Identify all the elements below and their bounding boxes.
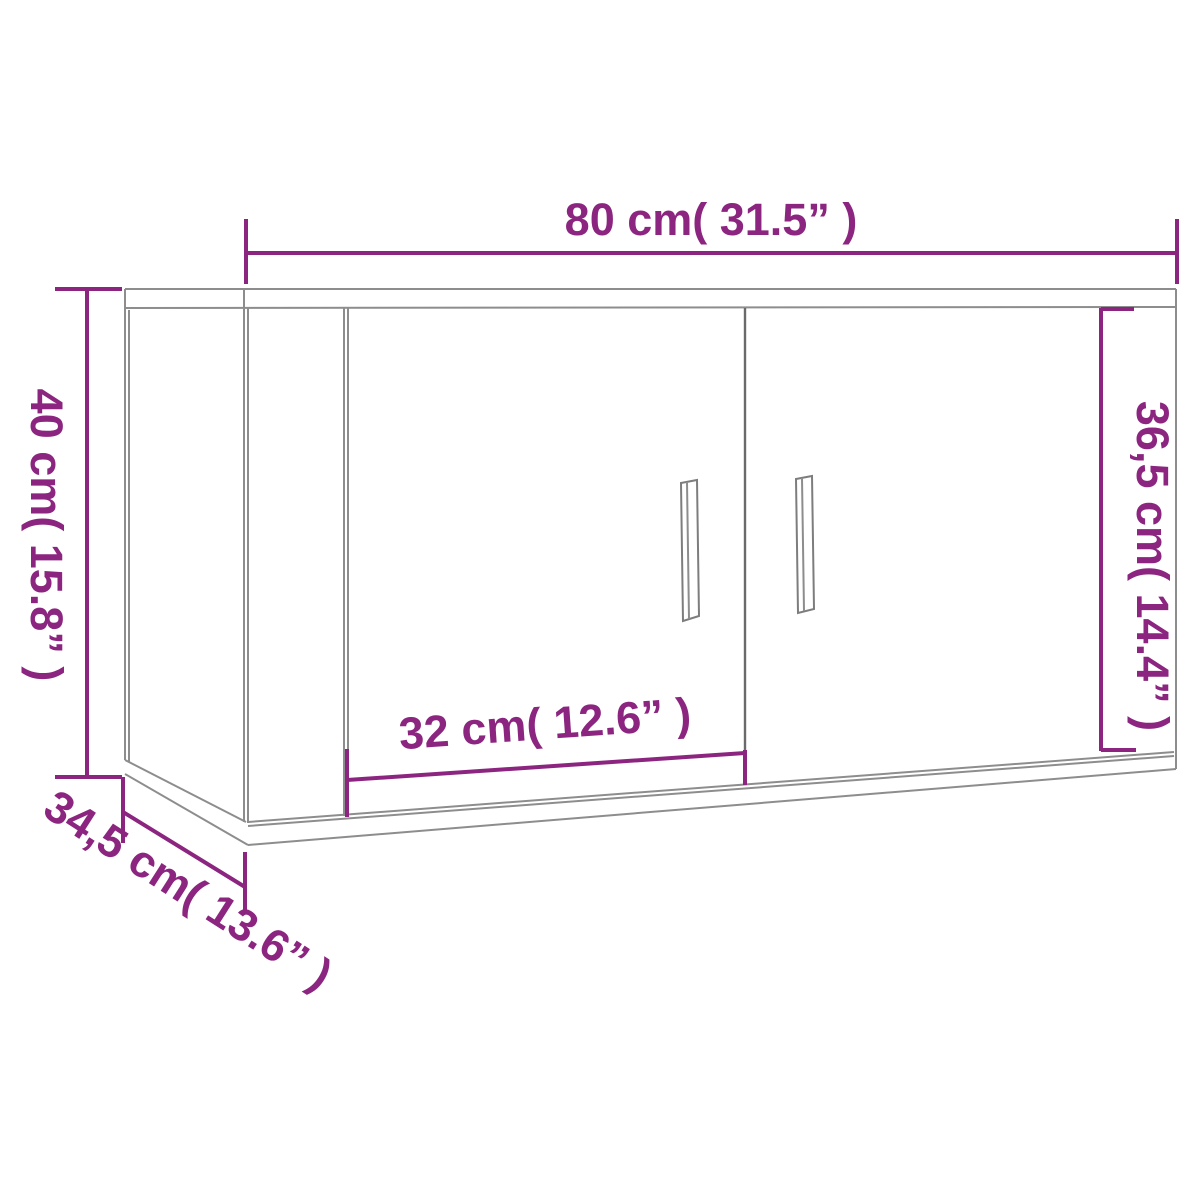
right-door-handle-outline <box>796 476 814 613</box>
door-bottom-edge <box>248 752 1174 822</box>
dimension-diagram: 80 cm( 31.5” ) 40 cm( 15.8” ) 36,5 cm( 1… <box>0 0 1200 1200</box>
dimension-door-width: 32 cm( 12.6” ) <box>347 688 745 817</box>
side-panel-bottom-edge <box>125 760 246 822</box>
left-door-handle-outline <box>681 480 699 621</box>
depth-dimension-label: 34,5 cm( 13.6” ) <box>35 780 341 1000</box>
cabinet-dimension-drawing: 80 cm( 31.5” ) 40 cm( 15.8” ) 36,5 cm( 1… <box>0 0 1200 1200</box>
dimension-overall-width: 80 cm( 31.5” ) <box>246 194 1177 284</box>
dimension-door-height: 36,5 cm( 14.4” ) <box>1101 308 1178 751</box>
left-door-handle <box>681 480 699 621</box>
door-width-dimension-label: 32 cm( 12.6” ) <box>397 688 693 759</box>
width-dimension-label: 80 cm( 31.5” ) <box>565 194 858 245</box>
cabinet-outline <box>125 289 1176 845</box>
cabinet-top-front-edge <box>125 307 1176 308</box>
height-dimension-label: 40 cm( 15.8” ) <box>21 389 72 682</box>
door-bottom-edge-inner <box>248 756 1174 826</box>
door-height-dimension-label: 36,5 cm( 14.4” ) <box>1127 401 1178 731</box>
right-door-handle <box>796 476 814 613</box>
dimension-overall-height: 40 cm( 15.8” ) <box>21 289 122 777</box>
cabinet-bottom-edge <box>248 769 1176 845</box>
